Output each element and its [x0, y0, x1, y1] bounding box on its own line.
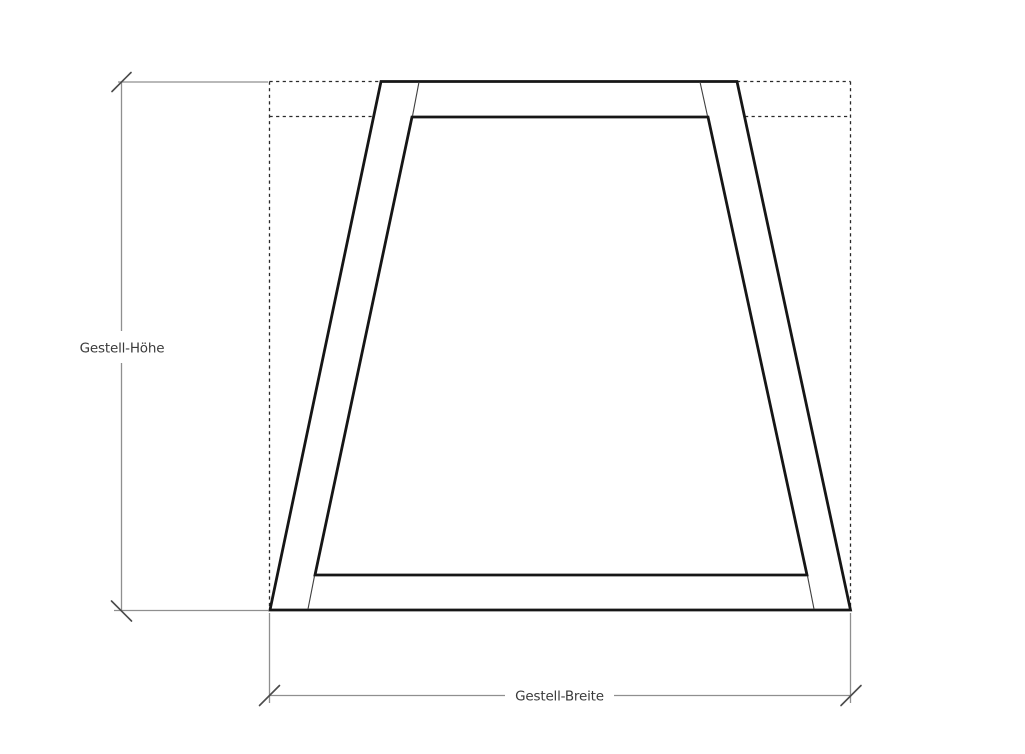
height-dimension: Gestell-Höhe	[80, 73, 268, 622]
trapezoid-frame	[270, 82, 851, 611]
joint-line-top-left	[413, 82, 420, 116]
width-dimension-label: Gestell-Breite	[515, 689, 604, 705]
frame-outer-outline	[270, 82, 851, 611]
frame-dimension-drawing: Gestell-Höhe Gestell-Breite	[0, 0, 1025, 754]
joint-line-top-right	[700, 82, 708, 116]
drawing-canvas: Gestell-Höhe Gestell-Breite	[0, 0, 1025, 754]
joint-line-bottom-right	[808, 576, 815, 609]
height-dimension-label: Gestell-Höhe	[80, 341, 165, 357]
width-dimension: Gestell-Breite	[260, 613, 862, 706]
joint-line-bottom-left	[308, 576, 315, 609]
frame-inner-outline	[315, 117, 807, 575]
dashed-reference-box	[270, 82, 851, 610]
